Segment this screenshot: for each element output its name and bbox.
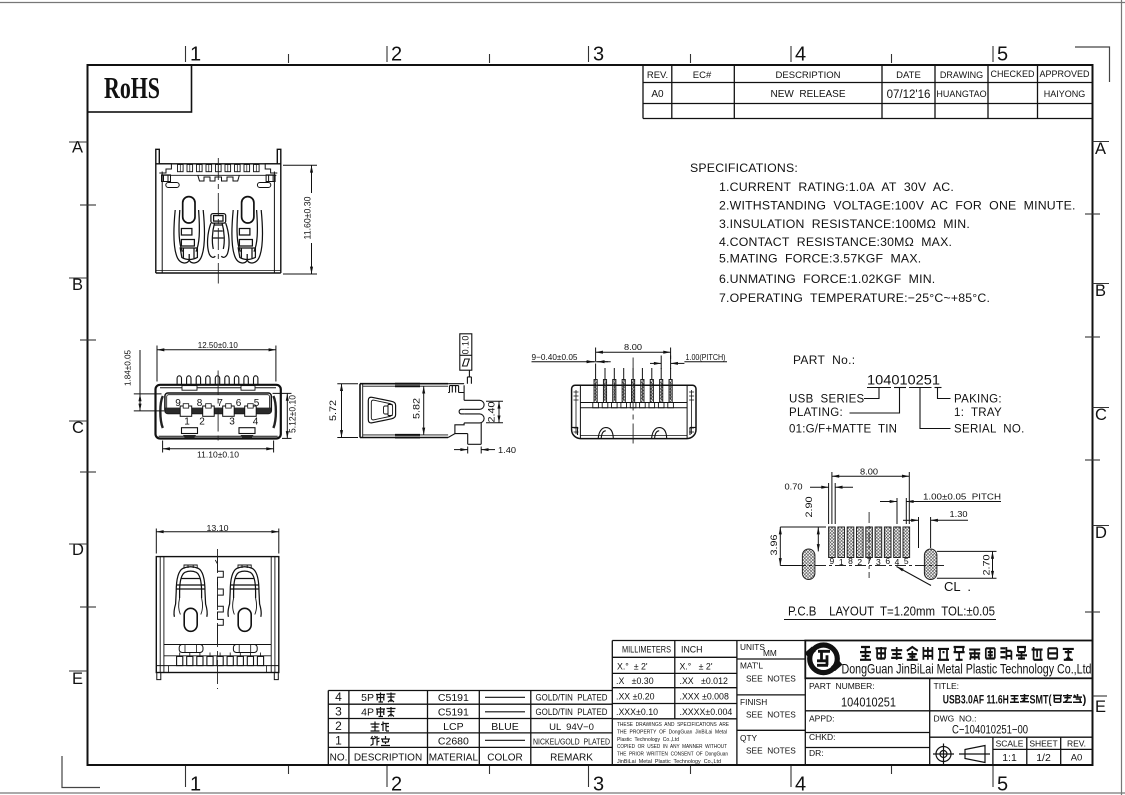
svg-text:2: 2: [391, 774, 402, 795]
svg-text:D: D: [1095, 524, 1107, 542]
svg-text:8.00: 8.00: [860, 467, 878, 477]
svg-text:SEE NOTES: SEE NOTES: [746, 674, 796, 684]
svg-text:6: 6: [885, 556, 890, 566]
svg-text:1: 1: [184, 417, 190, 428]
svg-text:.X ±0.30: .X ±0.30: [616, 676, 654, 686]
svg-text:C−104010251−00: C−104010251−00: [952, 723, 1028, 737]
svg-text:REV.: REV.: [647, 70, 668, 81]
svg-text:SEE NOTES: SEE NOTES: [746, 746, 796, 756]
svg-text:TITLE:: TITLE:: [934, 681, 960, 691]
svg-text:A0: A0: [651, 89, 664, 100]
svg-text:SPECIFICATIONS:: SPECIFICATIONS:: [690, 161, 798, 175]
svg-text:JinBiLai Metal Plastic Tech: JinBiLai Metal Plastic Technology Co.,Lt…: [617, 759, 721, 765]
svg-text:B: B: [1095, 282, 1106, 300]
svg-text:E: E: [72, 670, 83, 688]
svg-text:8.00: 8.00: [624, 342, 642, 352]
svg-text:4: 4: [795, 44, 806, 66]
svg-text:9−0.40±0.05: 9−0.40±0.05: [532, 352, 578, 362]
svg-text:12.50±0.10: 12.50±0.10: [198, 340, 238, 350]
svg-text:13.10: 13.10: [207, 523, 229, 533]
svg-text:COPIED OR USED IN ANY MAN: COPIED OR USED IN ANY MANNER WITHOUT: [617, 744, 727, 750]
svg-text:5.82: 5.82: [412, 398, 422, 419]
svg-text:C2680: C2680: [438, 736, 469, 748]
svg-text:THESE DRAWINGS AND SPECIFIC: THESE DRAWINGS AND SPECIFICATIONS ARE: [617, 722, 729, 728]
svg-text:1.00±0.05 PITCH: 1.00±0.05 PITCH: [923, 492, 1001, 502]
svg-text:B: B: [72, 276, 83, 294]
svg-text:SERIAL NO.: SERIAL NO.: [954, 424, 1025, 436]
svg-text:C5191: C5191: [438, 707, 469, 719]
svg-text:2.90: 2.90: [804, 497, 814, 518]
svg-text:): ): [1083, 695, 1087, 707]
svg-text:APPROVED: APPROVED: [1039, 69, 1090, 79]
svg-text:1:1: 1:1: [1002, 752, 1017, 764]
svg-text:DRAWING: DRAWING: [940, 70, 983, 80]
svg-text:Plastic Technology Co.,Ltd: Plastic Technology Co.,Ltd: [617, 737, 679, 743]
svg-text:USB SERIES: USB SERIES: [789, 394, 865, 406]
svg-text:0.10: 0.10: [461, 335, 471, 354]
svg-text:THE PRIOR WRITTEN CONSENT: THE PRIOR WRITTEN CONSENT OF DongGuan: [617, 752, 728, 758]
svg-text:MAT'L: MAT'L: [740, 661, 763, 671]
svg-text:3.INSULATION RESISTANCE:100MΩ: 3.INSULATION RESISTANCE:100MΩ MIN.: [719, 217, 970, 231]
svg-text:MATERIAL: MATERIAL: [429, 753, 479, 764]
svg-text:104010251: 104010251: [867, 373, 940, 388]
svg-text:1/2: 1/2: [1036, 752, 1051, 764]
svg-text:CL .: CL .: [944, 579, 971, 594]
svg-text:4: 4: [795, 774, 806, 795]
svg-text:3: 3: [593, 44, 604, 66]
svg-text:1.00(PITCH): 1.00(PITCH): [686, 352, 726, 362]
svg-text:4.CONTACT RESISTANCE:30MΩ MA: 4.CONTACT RESISTANCE:30MΩ MAX.: [719, 235, 952, 249]
svg-text:.XX ±0.012: .XX ±0.012: [680, 676, 728, 686]
svg-text:REV.: REV.: [1067, 739, 1086, 749]
svg-text:LCP: LCP: [443, 721, 463, 733]
svg-text:1: 1: [190, 774, 201, 795]
svg-text:11.10±0.10: 11.10±0.10: [197, 450, 239, 460]
svg-text:4: 4: [335, 690, 342, 704]
svg-text:UL 94V−0: UL 94V−0: [549, 722, 594, 733]
svg-text:UNITS: UNITS: [740, 642, 765, 652]
svg-text:5.12±0.10: 5.12±0.10: [288, 395, 298, 433]
svg-text:DATE: DATE: [896, 70, 921, 81]
svg-text:HAIYONG: HAIYONG: [1044, 89, 1086, 99]
svg-text:5.MATING FORCE:3.57KGF MAX.: 5.MATING FORCE:3.57KGF MAX.: [719, 252, 921, 266]
svg-text:6.UNMATING FORCE:1.02KGF MIN: 6.UNMATING FORCE:1.02KGF MIN.: [719, 272, 935, 286]
svg-text:EC#: EC#: [693, 70, 712, 81]
svg-text:5: 5: [997, 774, 1008, 795]
svg-text:1.40: 1.40: [498, 445, 516, 455]
svg-text:BLUE: BLUE: [491, 721, 518, 733]
svg-text:A0: A0: [1071, 753, 1083, 764]
svg-text:HUANGTAO: HUANGTAO: [936, 89, 986, 99]
svg-text:PLATING:: PLATING:: [789, 407, 843, 419]
svg-text:2.40: 2.40: [487, 402, 497, 423]
svg-text:1: TRAY: 1: TRAY: [954, 407, 1002, 419]
svg-text:USB3.0AF 11.6H: USB3.0AF 11.6H: [943, 695, 1009, 707]
svg-text:8: 8: [197, 398, 203, 409]
svg-text:01:G/F+MATTE TIN: 01:G/F+MATTE TIN: [789, 424, 897, 436]
svg-text:PAKING:: PAKING:: [954, 394, 1002, 406]
svg-text:NICKEL/GOLD PLATED: NICKEL/GOLD PLATED: [533, 737, 610, 747]
svg-text:1: 1: [335, 734, 342, 748]
svg-text:C: C: [72, 419, 84, 437]
svg-text:4: 4: [253, 417, 259, 428]
svg-text:2.70: 2.70: [982, 555, 992, 576]
svg-text:6: 6: [236, 398, 242, 409]
svg-text:CHECKED: CHECKED: [990, 69, 1035, 79]
svg-text:X.° ± 2': X.° ± 2': [617, 662, 648, 672]
svg-text:104010251: 104010251: [841, 695, 896, 710]
svg-text:5P: 5P: [361, 692, 374, 704]
svg-text:X.° ± 2': X.° ± 2': [680, 662, 713, 672]
svg-text:A: A: [1095, 140, 1106, 158]
svg-text:3.96: 3.96: [769, 535, 779, 556]
svg-text:A: A: [72, 139, 83, 157]
svg-text:9: 9: [175, 398, 181, 409]
svg-text:SHEET: SHEET: [1029, 739, 1057, 749]
svg-text:THE PROPERTY OF DongGuan J: THE PROPERTY OF DongGuan JinBiLai Metal: [617, 729, 727, 735]
svg-text:GOLD/TIN PLATED: GOLD/TIN PLATED: [536, 693, 608, 703]
svg-text:5.72: 5.72: [328, 400, 338, 421]
svg-text:2: 2: [391, 44, 402, 66]
svg-text:QTY: QTY: [740, 733, 758, 743]
svg-text:3: 3: [335, 705, 342, 719]
svg-text:1.CURRENT RATING:1.0A AT 30: 1.CURRENT RATING:1.0A AT 30V AC.: [719, 180, 954, 194]
svg-text:7.OPERATING TEMPERATURE:−25°C: 7.OPERATING TEMPERATURE:−25°C~+85°C.: [719, 291, 990, 305]
svg-text:CHKD:: CHKD:: [809, 732, 835, 742]
svg-text:5: 5: [904, 556, 909, 566]
svg-text:2.WITHSTANDING VOLTAGE:100V: 2.WITHSTANDING VOLTAGE:100V AC FOR ONE M…: [719, 199, 1076, 213]
svg-text:NO.: NO.: [330, 753, 348, 764]
svg-text:.XX ±0.20: .XX ±0.20: [616, 692, 655, 702]
svg-text:5: 5: [997, 44, 1008, 66]
svg-text:8: 8: [848, 556, 853, 566]
svg-text:2: 2: [335, 719, 342, 733]
svg-text:P.C.B LAYOUT T=1.20mm TOL: P.C.B LAYOUT T=1.20mm TOL:±0.05: [788, 604, 995, 619]
svg-text:.XXX ±0.008: .XXX ±0.008: [680, 692, 729, 702]
svg-text:9: 9: [830, 556, 835, 566]
svg-text:INCH: INCH: [681, 645, 703, 655]
svg-text:DR:: DR:: [809, 748, 824, 758]
svg-text:RoHS: RoHS: [104, 70, 160, 105]
svg-text:MILLIMETERS: MILLIMETERS: [622, 645, 671, 655]
svg-text:.XXXX±0.004: .XXXX±0.004: [680, 707, 733, 717]
svg-text:07/12'16: 07/12'16: [887, 89, 931, 101]
svg-text:E: E: [1095, 698, 1106, 716]
svg-text:C5191: C5191: [438, 692, 469, 704]
svg-text:5: 5: [254, 398, 260, 409]
svg-text:0.70: 0.70: [785, 482, 803, 492]
svg-text:C: C: [1095, 406, 1107, 424]
svg-text:GOLD/TIN PLATED: GOLD/TIN PLATED: [536, 707, 608, 717]
svg-text:MM: MM: [763, 648, 777, 658]
svg-text:DongGuan JinBiLai Metal Plasti: DongGuan JinBiLai Metal Plastic Technolo…: [842, 662, 1092, 677]
svg-text:PART NUMBER:: PART NUMBER:: [809, 681, 875, 691]
svg-text:NEW RELEASE: NEW RELEASE: [770, 89, 845, 100]
svg-text:.XXX±0.10: .XXX±0.10: [616, 707, 658, 717]
svg-text:SCALE: SCALE: [996, 739, 1024, 749]
svg-text:FINISH: FINISH: [740, 697, 767, 707]
svg-text:1: 1: [190, 44, 201, 66]
svg-text:COLOR: COLOR: [487, 753, 523, 764]
svg-text:APPD:: APPD:: [809, 714, 835, 724]
svg-text:11.60±0.30: 11.60±0.30: [303, 197, 313, 240]
svg-text:SMT(: SMT(: [1030, 695, 1052, 707]
svg-text:DESCRIPTION: DESCRIPTION: [354, 753, 422, 764]
svg-text:DESCRIPTION: DESCRIPTION: [776, 70, 841, 81]
svg-text:3: 3: [229, 417, 235, 428]
svg-text:1.84±0.05: 1.84±0.05: [123, 350, 133, 386]
svg-text:PART No.:: PART No.:: [793, 353, 855, 367]
svg-text:3: 3: [593, 774, 604, 795]
svg-text:2: 2: [199, 417, 205, 428]
svg-text:REMARK: REMARK: [550, 753, 593, 764]
svg-text:SEE NOTES: SEE NOTES: [746, 710, 796, 720]
svg-text:1.30: 1.30: [950, 509, 968, 519]
svg-text:4P: 4P: [361, 707, 374, 719]
